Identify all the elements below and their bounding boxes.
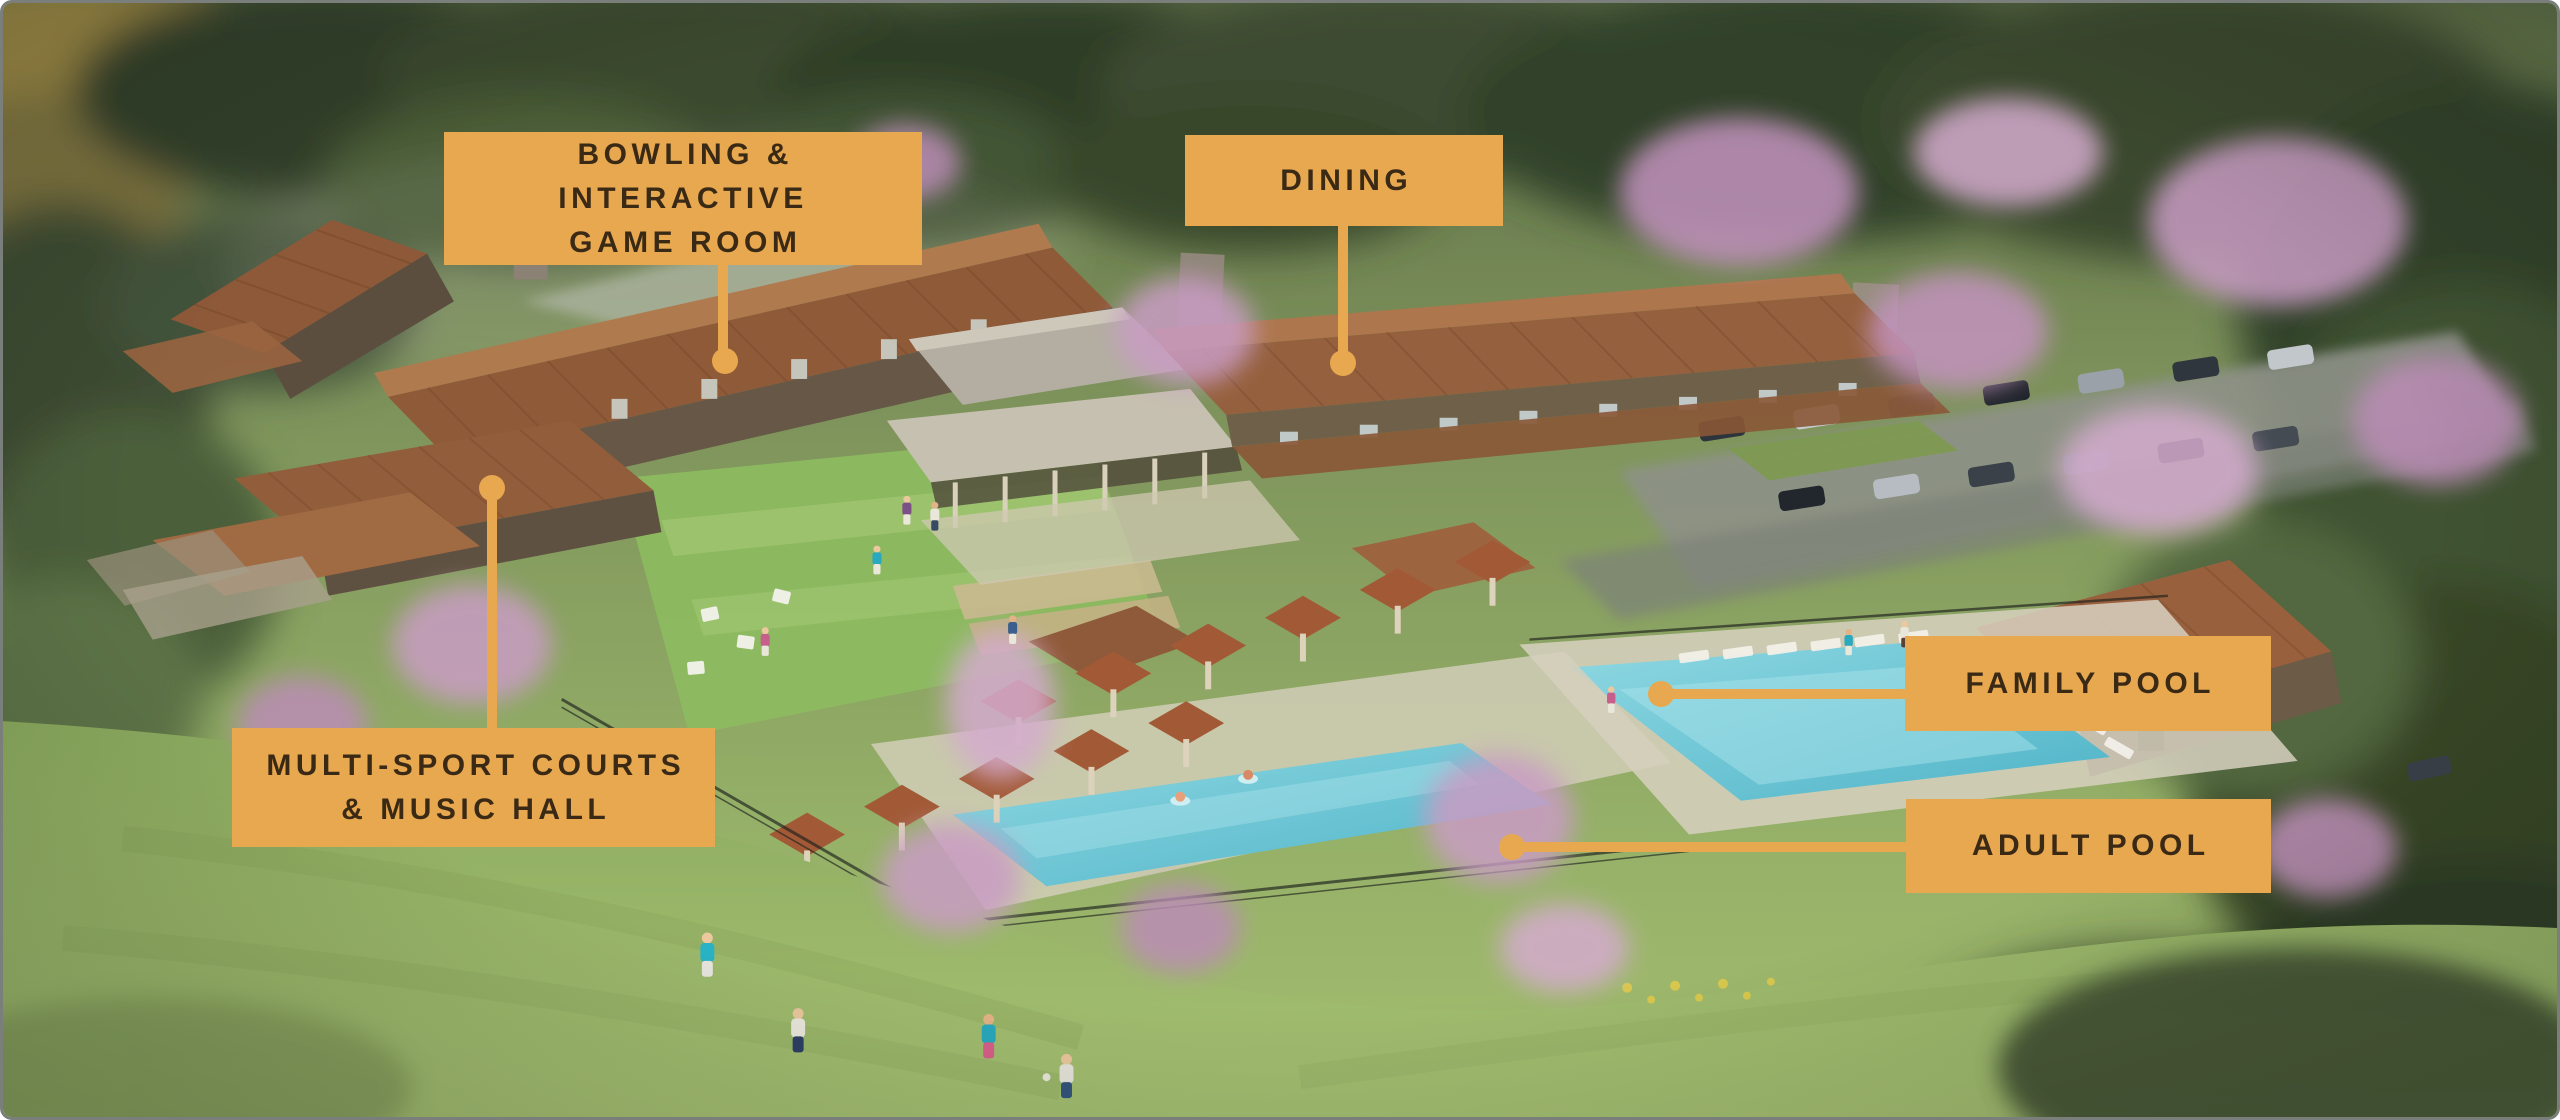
vignette (3, 3, 2557, 1117)
scene-painting (3, 3, 2557, 1117)
rendering-frame: BOWLING & INTERACTIVE GAME ROOM DINING M… (0, 0, 2560, 1120)
